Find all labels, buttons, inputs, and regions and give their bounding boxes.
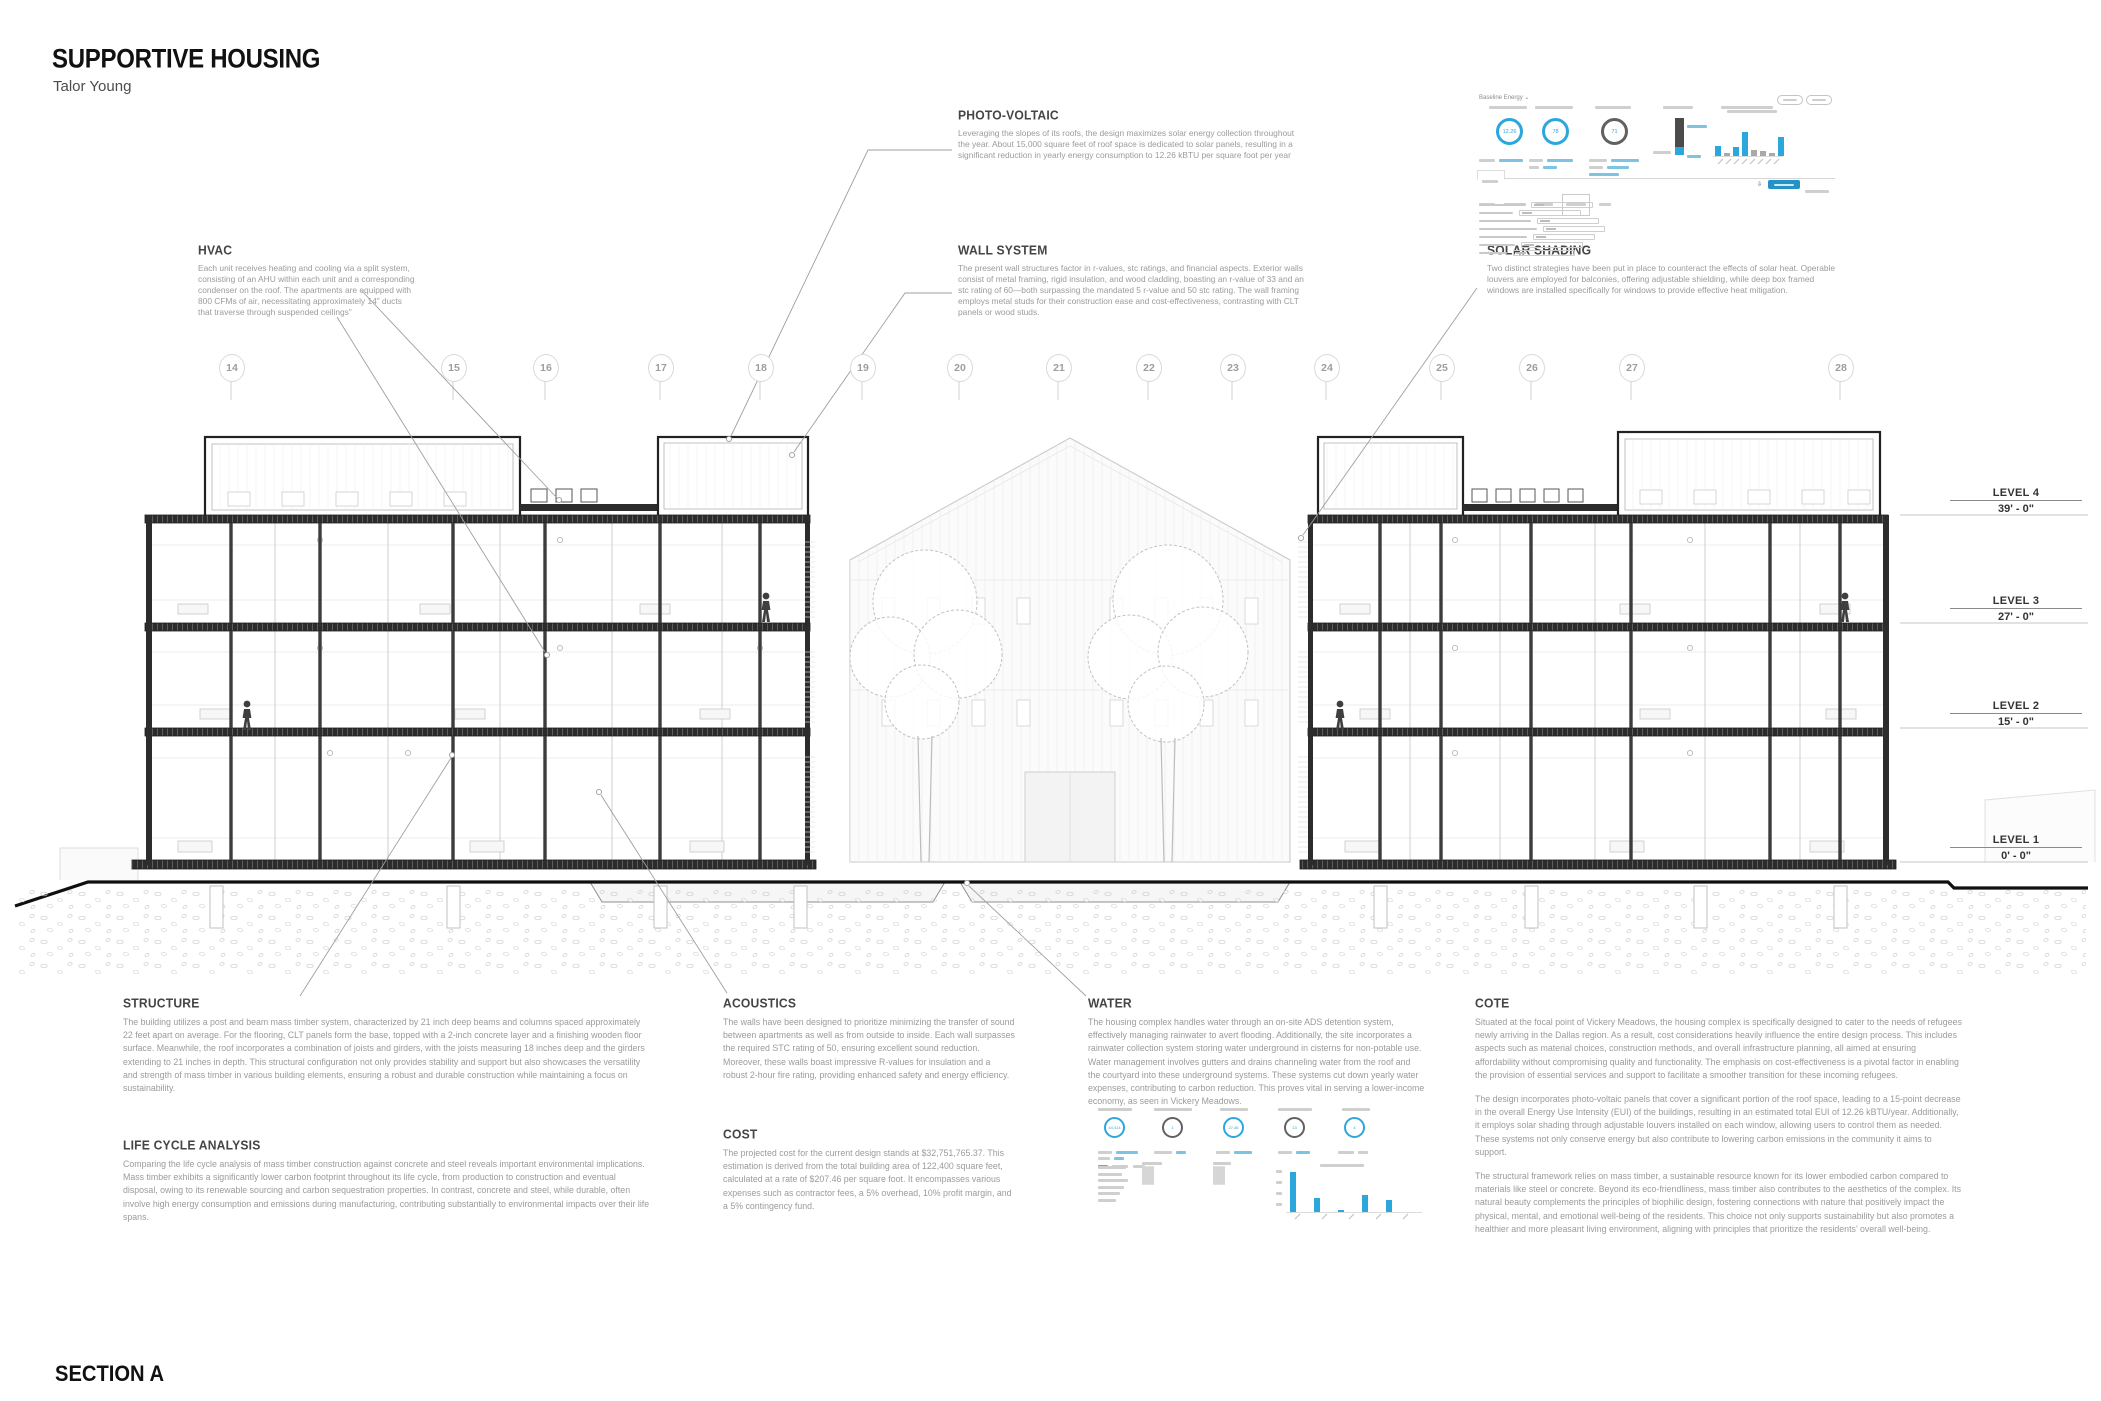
annotation-cost: COST The projected cost for the current … — [723, 1127, 1015, 1224]
annotation-wall-system: WALL SYSTEM The present wall structures … — [958, 243, 1312, 329]
level-name: LEVEL 4 — [1950, 487, 2082, 501]
level-2-label: LEVEL 2 15' - 0" — [1950, 700, 2082, 728]
input-cell — [1223, 1166, 1225, 1185]
grid-bubble-23: 23 — [1220, 354, 1246, 382]
energy-donut: 78 — [1542, 118, 1569, 145]
water-input-column — [1213, 1162, 1239, 1185]
annotation-photo-voltaic: PHOTO-VOLTAIC Leveraging the slopes of i… — [958, 108, 1306, 172]
annotation-body: The structural framework relies on mass … — [1475, 1170, 1962, 1236]
grid-bubble-16: 16 — [533, 354, 559, 382]
bar — [1742, 132, 1748, 156]
stacked-bar-top — [1675, 118, 1684, 147]
level-3-label: LEVEL 3 27' - 0" — [1950, 595, 2082, 623]
bar — [1362, 1195, 1368, 1212]
annotation-body: The design incorporates photo-voltaic pa… — [1475, 1093, 1962, 1159]
grid-bubble-24: 24 — [1314, 354, 1340, 382]
water-donut: 4 — [1344, 1117, 1365, 1138]
bar — [1778, 137, 1784, 156]
input-cell — [1152, 1166, 1154, 1185]
form-row — [1479, 202, 1619, 208]
grid-ticks — [231, 381, 1840, 400]
dashboard-primary-button — [1768, 180, 1800, 189]
water-form-labels — [1098, 1166, 1128, 1202]
annotation-heading: COTE — [1475, 996, 1947, 1010]
stacked-bar-bottom — [1675, 147, 1684, 155]
grid-bubble-15: 15 — [441, 354, 467, 382]
download-icon: ⇩ — [1757, 181, 1762, 188]
right-building-section — [1298, 432, 1896, 869]
annotation-heading: STRUCTURE — [123, 996, 634, 1010]
grid-bubble-19: 19 — [850, 354, 876, 382]
form-row — [1479, 218, 1619, 224]
site-element-left — [60, 848, 138, 880]
section-label: SECTION A — [55, 1362, 164, 1387]
bar — [1314, 1198, 1320, 1212]
annotation-body: Two distinct strategies have been put in… — [1487, 263, 1841, 296]
bar — [1386, 1200, 1392, 1212]
level-4-label: LEVEL 4 39' - 0" — [1950, 487, 2082, 515]
annotation-body: The walls have been designed to prioriti… — [723, 1016, 1015, 1082]
form-row — [1479, 242, 1619, 248]
energy-mini-bar-chart — [1715, 116, 1784, 156]
annotation-body: The projected cost for the current desig… — [723, 1147, 1015, 1213]
grid-bubble-17: 17 — [648, 354, 674, 382]
dashboard-button — [1777, 95, 1803, 105]
level-name: LEVEL 1 — [1950, 834, 2082, 848]
annotation-heading: WATER — [1088, 996, 1415, 1010]
annotation-body: Comparing the life cycle analysis of mas… — [123, 1158, 650, 1224]
grid-bubble-26: 26 — [1519, 354, 1545, 382]
dashboard-form — [1479, 202, 1619, 258]
left-building-section — [132, 437, 816, 869]
form-row — [1479, 226, 1619, 232]
bar — [1290, 1172, 1296, 1212]
dashboard-tab — [1477, 170, 1505, 180]
grid-bubble-20: 20 — [947, 354, 973, 382]
annotation-heading: COST — [723, 1127, 1006, 1141]
level-1-label: LEVEL 1 0' - 0" — [1950, 834, 2082, 862]
energy-donut-eui: 12.26 — [1496, 118, 1523, 145]
grade-line — [15, 882, 2088, 974]
annotation-heading: ACOUSTICS — [723, 996, 1006, 1010]
annotation-acoustics: ACOUSTICS The walls have been designed t… — [723, 996, 1015, 1093]
annotation-structure: STRUCTURE The building utilizes a post a… — [123, 996, 650, 1106]
water-chart-axis — [1276, 1170, 1282, 1206]
energy-dashboard-screenshot: Baseline Energy ⌄ 12.26 78 71 ⇩ — [1477, 92, 1835, 234]
page-author: Talor Young — [53, 78, 131, 95]
form-row — [1479, 210, 1619, 216]
energy-chart-tick-labels — [1717, 161, 1781, 162]
water-donut: 13 — [1284, 1117, 1305, 1138]
annotation-cote: COTE Situated at the focal point of Vick… — [1475, 996, 1962, 1247]
level-elevation: 39' - 0" — [1950, 501, 2082, 515]
annotation-heading: LIFE CYCLE ANALYSIS — [123, 1138, 634, 1152]
annotation-body: Situated at the focal point of Vickery M… — [1475, 1016, 1962, 1082]
annotation-life-cycle-analysis: LIFE CYCLE ANALYSIS Comparing the life c… — [123, 1138, 650, 1235]
level-elevation: 27' - 0" — [1950, 609, 2082, 623]
water-input-column — [1142, 1162, 1169, 1185]
level-name: LEVEL 2 — [1950, 700, 2082, 714]
annotation-body: The building utilizes a post and beam ma… — [123, 1016, 650, 1095]
annotation-body: The present wall structures factor in r-… — [958, 263, 1312, 318]
grid-bubble-22: 22 — [1136, 354, 1162, 382]
grid-bubble-25: 25 — [1429, 354, 1455, 382]
grid-bubble-18: 18 — [748, 354, 774, 382]
grid-bubble-14: 14 — [219, 354, 245, 382]
energy-dashboard-title: Baseline Energy ⌄ — [1479, 94, 1529, 101]
energy-donut: 71 — [1601, 118, 1628, 145]
level-elevation: 0' - 0" — [1950, 848, 2082, 862]
water-mini-bar-chart — [1290, 1170, 1392, 1212]
annotation-hvac: HVAC Each unit receives heating and cool… — [198, 243, 416, 329]
page-title: SUPPORTIVE HOUSING — [52, 44, 320, 75]
water-donut: 44,414 — [1104, 1117, 1125, 1138]
bar — [1715, 146, 1721, 156]
annotation-heading: WALL SYSTEM — [958, 243, 1301, 257]
annotation-heading: PHOTO-VOLTAIC — [958, 108, 1296, 122]
bar — [1733, 147, 1739, 156]
annotation-body: Leveraging the slopes of its roofs, the … — [958, 128, 1306, 161]
water-donut: 27.46 — [1223, 1117, 1244, 1138]
water-dashboard-screenshot: 44,414 1 27.46 13 4 — [1098, 1100, 1430, 1225]
level-elevation: 15' - 0" — [1950, 714, 2082, 728]
water-chart-tick-labels — [1294, 1216, 1410, 1217]
level-name: LEVEL 3 — [1950, 595, 2082, 609]
grid-bubble-21: 21 — [1046, 354, 1072, 382]
grid-bubble-27: 27 — [1619, 354, 1645, 382]
form-row — [1479, 250, 1619, 256]
annotation-heading: HVAC — [198, 243, 409, 257]
annotation-body: Each unit receives heating and cooling v… — [198, 263, 416, 318]
water-donut: 1 — [1162, 1117, 1183, 1138]
dashboard-button — [1806, 95, 1832, 105]
presentation-board: SUPPORTIVE HOUSING Talor Young SECTION A… — [0, 0, 2101, 1401]
form-row — [1479, 234, 1619, 240]
annotation-body: The housing complex handles water throug… — [1088, 1016, 1425, 1108]
grid-bubble-28: 28 — [1828, 354, 1854, 382]
